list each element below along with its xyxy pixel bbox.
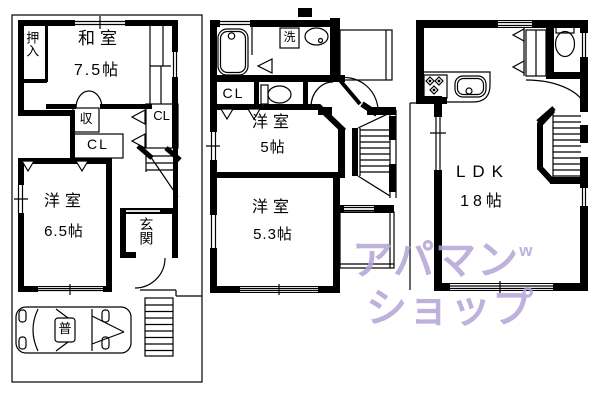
room-size-bedroom1: 5帖 bbox=[230, 140, 316, 157]
room-label-closet-hall: CL bbox=[73, 137, 123, 152]
room-size-yoshitsu1f: 6.5帖 bbox=[14, 224, 114, 241]
room-label-laundry: 洗 bbox=[281, 31, 298, 44]
stove-icon bbox=[424, 75, 447, 98]
washitsu-closet bbox=[150, 26, 172, 104]
hall-closet bbox=[524, 28, 546, 76]
room-size-ldk: 18帖 bbox=[436, 193, 530, 211]
balcony-upper bbox=[340, 30, 392, 80]
stairs-2f bbox=[358, 110, 396, 198]
floor3-windows bbox=[430, 21, 588, 293]
floorplan-canvas: 押入 和室 7.5帖 収 CL CL 洋室 6.5帖 玄関 普 洗 CL 洋室 … bbox=[0, 0, 600, 400]
double-door-arc bbox=[76, 91, 102, 108]
room-label-closet-2f: CL bbox=[212, 86, 255, 101]
floor3-plan bbox=[410, 20, 588, 293]
door-leaf bbox=[338, 78, 360, 104]
washbasin-icon bbox=[305, 28, 328, 45]
stairs-exterior bbox=[145, 298, 173, 356]
room-label-storage: 収 bbox=[74, 112, 98, 126]
toilet-icon-2f bbox=[261, 85, 291, 104]
car-plate-label: 普 bbox=[55, 322, 75, 336]
room-label-yoshitsu1f: 洋室 bbox=[20, 193, 110, 211]
room-label-ldk: LDK bbox=[438, 163, 528, 182]
room-label-bedroom2: 洋室 bbox=[228, 199, 318, 217]
eaves-line bbox=[410, 103, 416, 290]
bathtub-icon bbox=[218, 29, 248, 75]
bath-door-mark bbox=[258, 59, 272, 73]
room-label-genkan: 玄関 bbox=[138, 217, 153, 257]
room-size-bedroom2: 5.3帖 bbox=[222, 227, 324, 244]
room-label-bedroom1: 洋室 bbox=[230, 114, 316, 132]
balcony-lower bbox=[340, 212, 394, 268]
sliding-door-marks bbox=[513, 29, 524, 73]
room-size-washitsu: 7.5帖 bbox=[42, 62, 152, 80]
entrance-door-arc bbox=[135, 258, 165, 288]
floor2-windows bbox=[206, 19, 374, 295]
door-arc bbox=[526, 80, 586, 111]
wall-diagonal bbox=[362, 104, 377, 114]
room-label-oshiire: 押入 bbox=[24, 31, 38, 77]
room-label-closet-right: CL bbox=[153, 107, 170, 126]
toilet-icon-3f bbox=[556, 27, 575, 57]
porch-step bbox=[140, 290, 202, 296]
stairs-3f bbox=[540, 110, 581, 182]
room-label-washitsu: 和室 bbox=[50, 30, 150, 49]
door-arc bbox=[311, 82, 333, 107]
kitchen-sink-icon bbox=[455, 76, 486, 97]
